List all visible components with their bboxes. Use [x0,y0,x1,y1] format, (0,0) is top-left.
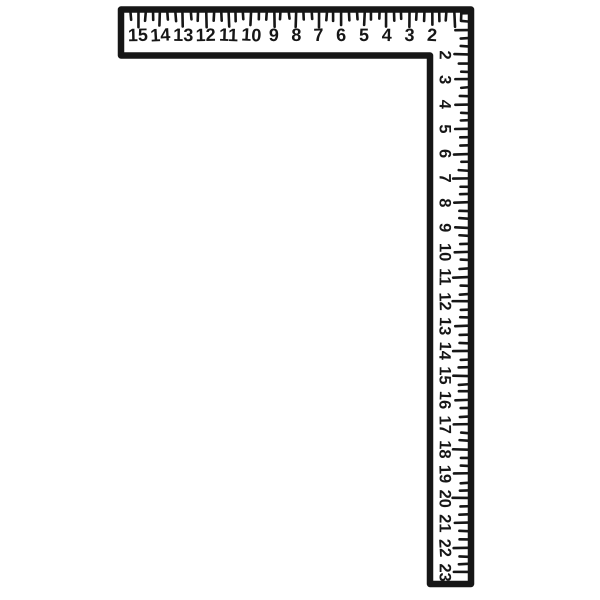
framing-square-svg: 1514131211109876543223456789101112131415… [0,0,600,600]
sub-tick [446,13,447,21]
horizontal-scale-number: 4 [381,25,392,45]
sub-tick [460,268,468,269]
vertical-scale-number: 2 [436,50,454,59]
horizontal-scale-number: 5 [359,25,369,45]
sub-tick [461,483,468,484]
inch-tick [454,154,468,155]
horizontal-scale-number: 11 [219,25,239,46]
square-outline [121,10,471,585]
vertical-scale-number: 20 [436,489,454,508]
sub-tick [289,13,290,19]
sub-tick [461,87,468,88]
horizontal-scale-number: 8 [291,25,301,45]
vertical-scale-number: 12 [435,292,454,311]
vertical-scale-number: 3 [435,75,453,85]
horizontal-scale-number: 14 [150,24,171,45]
sub-tick [167,13,168,20]
sub-tick [326,13,327,21]
horizontal-scale-number: 3 [404,25,415,45]
vertical-scale-number: 10 [436,243,454,261]
horizontal-scale-number: 13 [173,25,193,45]
horizontal-scale-number: 12 [195,25,215,45]
inch-tick [453,277,468,278]
vertical-scale-number: 7 [436,173,454,183]
horizontal-scale-number: 9 [268,25,279,45]
framing-square-illustration: 1514131211109876543223456789101112131415… [0,0,600,600]
vertical-scale-number: 18 [435,440,454,459]
horizontal-scale-number: 2 [427,25,438,46]
inch-tick [364,13,365,25]
sub-tick [459,170,468,171]
sub-tick [191,13,192,20]
vertical-scale-number: 15 [436,366,454,385]
sub-tick [459,218,468,219]
vertical-scale-number: 14 [435,341,454,361]
sub-tick [145,13,146,21]
vertical-scale-number: 19 [435,465,453,484]
sub-tick [461,21,468,22]
sub-tick [122,13,123,19]
sub-tick [461,433,468,434]
vertical-scale-number: 6 [435,149,453,159]
inch-tick [454,13,455,27]
inch-tick [250,13,251,26]
vertical-scale-number: 23 [436,563,454,581]
sub-tick [459,384,468,385]
horizontal-scale-number: 15 [128,25,148,45]
inch-tick [454,202,468,203]
inch-tick [455,227,468,228]
vertical-scale-number: 13 [435,317,454,336]
vertical-scale-number: 22 [435,538,454,557]
sub-tick [460,440,468,441]
sub-tick [460,294,468,295]
vertical-scale-number: 5 [436,124,454,133]
vertical-scale-number: 17 [435,415,453,434]
vertical-scale-number: 16 [435,391,454,410]
horizontal-scale-number: 6 [336,25,347,45]
sub-tick [175,13,176,22]
vertical-scale-number: 21 [436,514,454,532]
vertical-scale-number: 8 [435,198,453,208]
sub-tick [459,235,468,236]
vertical-scale-number: 9 [435,222,454,232]
sub-tick [460,417,468,418]
vertical-scale-number: 4 [435,99,453,110]
sub-tick [459,564,468,565]
sub-tick [131,13,132,20]
horizontal-scale-number: 10 [241,24,262,45]
vertical-scale-number: 11 [436,268,454,286]
horizontal-scale-number: 7 [313,25,324,45]
